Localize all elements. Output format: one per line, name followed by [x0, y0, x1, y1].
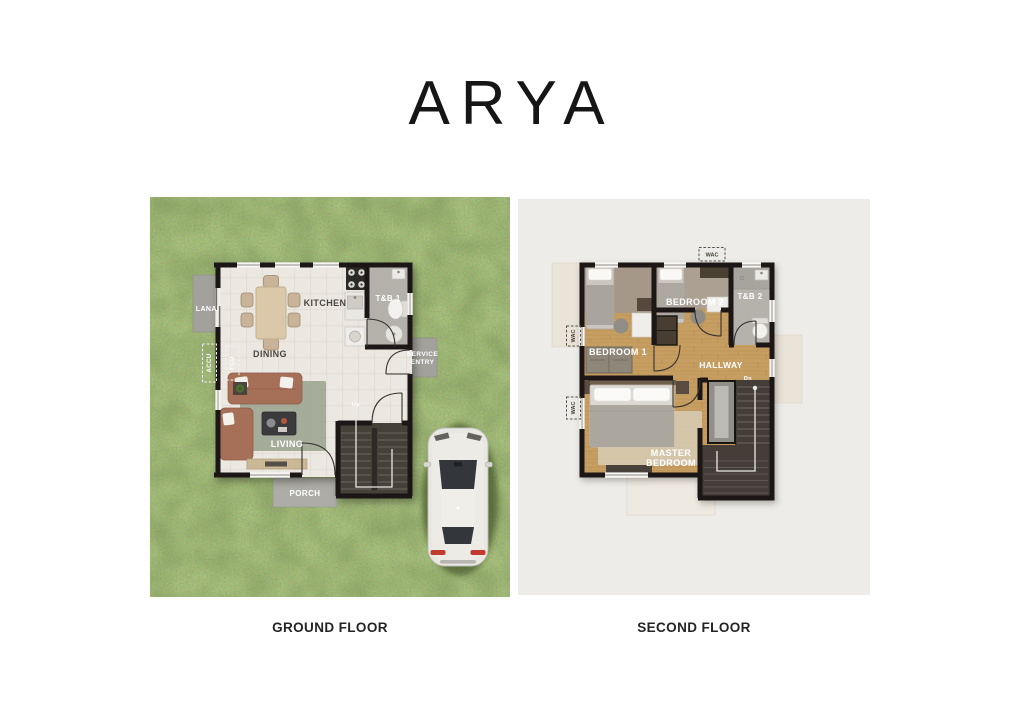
bedroom-1-label: BEDROOM 1: [589, 347, 647, 357]
nightstand-right: [676, 381, 689, 394]
master-bedroom-label-line1: MASTER: [651, 448, 692, 458]
wac-top-label: WAC: [706, 253, 719, 259]
taillight-right: [471, 550, 486, 555]
headboard: [588, 380, 676, 385]
second-floor-panel: Dn BEDROOM 1 BEDROOM 2 T&B 2 HALLWAY MAS…: [518, 199, 870, 595]
wac-left-lower-label: WAC: [571, 402, 577, 415]
toilet-bath-1-label: T&B 1: [375, 294, 400, 303]
kitchen-counter: [345, 292, 365, 346]
lanai-label: LANAI: [196, 306, 219, 313]
service-entry-label-line2: ENTRY: [411, 359, 435, 366]
kitchen-label: KITCHEN: [304, 298, 347, 308]
dresser-1: [637, 298, 652, 311]
toilet-bath-2-label: T&B 2: [737, 292, 762, 301]
wac-left-upper-label: WAC: [571, 330, 577, 343]
dining-table: [256, 287, 286, 339]
ground-floor-panel: Up KITCHEN DINING LIVING T&B 1 LANAI POR…: [150, 197, 510, 597]
taillight-left: [431, 550, 446, 555]
car: [424, 428, 493, 566]
master-bedroom-label-line2: BEDROOM: [646, 458, 696, 468]
porch-label: PORCH: [290, 489, 321, 498]
stove: [346, 266, 367, 290]
floorplan-page: ARYA: [0, 0, 1024, 724]
rear-window: [442, 527, 474, 544]
accu-label: ACCU: [207, 354, 213, 373]
staircase-second: [700, 380, 772, 498]
second-floor-caption: SECOND FLOOR: [518, 620, 870, 635]
mirror-left: [424, 462, 431, 467]
ledge-right: [772, 335, 802, 403]
staircase: [340, 423, 410, 496]
dresser-2: [700, 267, 729, 278]
living-label: LIVING: [271, 439, 303, 449]
service-entry-label-line1: SERVICE: [407, 351, 438, 358]
hallway-label: HALLWAY: [699, 360, 743, 370]
stairs-down-label: Dn: [744, 376, 752, 382]
ground-floor-plan: Up KITCHEN DINING LIVING T&B 1 LANAI POR…: [150, 197, 510, 597]
stairs-up-label: Up: [352, 402, 360, 408]
second-floor-plan: Dn BEDROOM 1 BEDROOM 2 T&B 2 HALLWAY MAS…: [518, 199, 870, 595]
fcu-label: FCU: [230, 356, 236, 370]
desk-1: [632, 313, 652, 337]
bedroom-2-label: BEDROOM 2: [666, 297, 724, 307]
mirror-right: [486, 462, 493, 467]
house-model-title: ARYA: [0, 68, 1024, 139]
ground-floor-caption: GROUND FLOOR: [150, 620, 510, 635]
master-console: [606, 465, 652, 473]
dining-label: DINING: [253, 349, 287, 359]
chair-1: [614, 319, 629, 334]
